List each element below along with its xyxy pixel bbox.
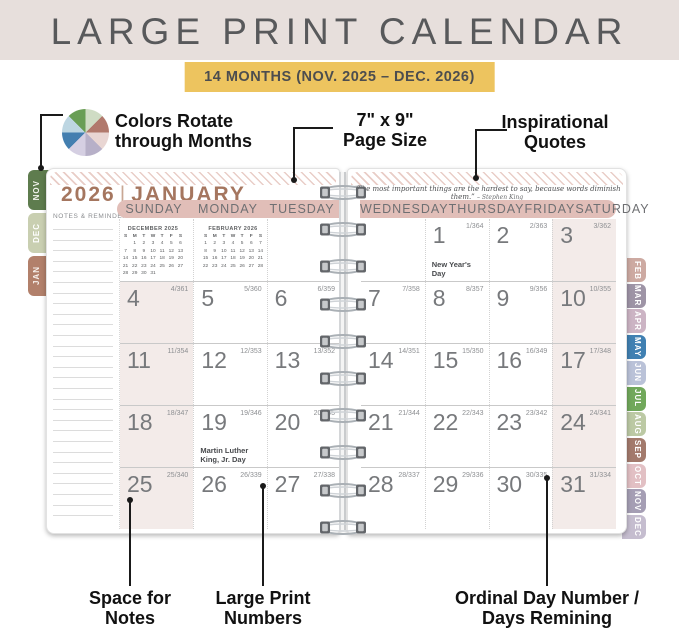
day-number: 25 [127,471,153,498]
day-number: 12 [201,347,227,374]
ordinal-day-number: 9/356 [530,286,548,293]
ordinal-day-number: 23/342 [526,410,547,417]
spiral-ring [318,221,368,238]
notes-line [53,303,113,304]
tab-label: APR [633,311,642,331]
day-number: 9 [497,285,510,312]
day-number: 3 [560,222,573,249]
mini-calendar-december: DECEMBER 2025SMTWTFS12345678910111213141… [121,226,185,278]
notes-line [53,261,113,262]
day-cell-21: 2121/344 [361,405,425,467]
day-number: 28 [368,471,394,498]
spiral-ring [318,444,368,461]
day-cell-16: 1616/349 [489,343,553,405]
notes-line [53,367,113,368]
callout-largeprint-line2: Numbers [200,608,326,628]
day-header-saturday: SATURDAY [575,202,649,216]
mini-calendar-title: FEBRUARY 2026 [201,226,265,232]
ordinal-day-number: 15/350 [462,348,483,355]
day-cell-30: 3030/335 [489,467,553,529]
day-number: 20 [275,409,301,436]
mini-calendar-week-row: 891011121314 [201,248,265,255]
notes-line [53,515,113,516]
day-cell-7: 77/358 [361,281,425,343]
notes-line [53,324,113,325]
ordinal-day-number: 21/344 [398,410,419,417]
tab-label: MAR [633,285,642,306]
day-cell-24: 2424/341 [552,405,616,467]
day-header-thursday: THURSDAY [449,202,525,216]
callout-connector-largeprint [262,487,264,586]
day-number: 15 [433,347,459,374]
ordinal-day-number: 16/349 [526,348,547,355]
header-strip: LARGE PRINT CALENDAR [0,0,679,60]
callout-dot-ordinal [544,475,550,481]
ordinal-day-number: 4/361 [171,286,189,293]
day-cell-10: 1010/355 [552,281,616,343]
year-label: 2026 [61,183,116,206]
callout-page-size: 7" x 9" Page Size [325,110,445,150]
notes-line [53,293,113,294]
callout-connector-colors-h [40,114,63,116]
day-number: 21 [368,409,394,436]
day-header-band-left: SUNDAYMONDAYTUESDAY [117,200,339,218]
day-number: 4 [127,285,140,312]
day-number: 13 [275,347,301,374]
day-header-friday: FRIDAY [524,202,575,216]
ordinal-day-number: 10/355 [590,286,611,293]
notes-line [53,240,113,241]
tab-label: FEB [633,261,642,280]
notes-line [53,346,113,347]
day-number: 27 [275,471,301,498]
day-number: 10 [560,285,586,312]
ordinal-day-number: 7/358 [402,286,420,293]
tab-label: DEC [32,223,41,243]
notes-ruled-lines [53,229,113,527]
spiral-ring [318,519,368,536]
day-number: 17 [560,347,586,374]
mini-calendar-week-row: 15161718192021 [201,255,265,262]
day-number: 5 [201,285,214,312]
day-number: 2 [497,222,510,249]
tab-label: OCT [633,466,642,486]
calendar-left-page: 2026|JANUARY NOTES & REMINDERS SUNDAYMON… [46,168,340,534]
decor-hatch-strip [351,172,623,185]
ordinal-day-number: 11/354 [167,348,188,355]
notes-line [53,473,113,474]
callout-dot-notes [127,497,133,503]
tab-label: SEP [633,440,642,459]
callout-pagesize-line1: 7" x 9" [325,110,445,130]
mini-calendar-week-row: 22232425262728 [201,263,265,270]
day-cell-5: 55/360 [193,281,266,343]
mini-calendar-week-row: 1234567 [201,240,265,247]
ordinal-day-number: 24/341 [590,410,611,417]
notes-line [53,335,113,336]
day-cell-18: 1818/347 [120,405,193,467]
callout-dot-quotes [473,175,479,181]
ordinal-day-number: 2/363 [530,223,548,230]
tab-label: JUN [633,363,642,382]
day-number: 7 [368,285,381,312]
notes-line [53,505,113,506]
day-cell-17: 1717/348 [552,343,616,405]
tab-label: JAN [32,266,41,285]
ordinal-day-number: 25/340 [167,472,188,479]
spiral-ring [318,333,368,350]
ordinal-day-number: 28/337 [398,472,419,479]
day-header-monday: MONDAY [191,202,265,216]
callout-colors-rotate: Colors Rotate through Months [115,111,252,151]
notes-line [53,356,113,357]
tab-label: NOV [633,491,642,511]
callout-colors-line2: through Months [115,131,252,151]
day-number: 6 [275,285,288,312]
callout-quotes-line2: Quotes [495,132,615,152]
day-cell-empty [361,219,425,281]
page-title: LARGE PRINT CALENDAR [0,0,679,60]
notes-line [53,420,113,421]
notes-line [53,399,113,400]
day-number: 23 [497,409,523,436]
ordinal-day-number: 19/346 [240,410,261,417]
day-number: 1 [433,222,446,249]
mini-calendar-week-row: 78910111213 [121,248,185,255]
spiral-ring [318,296,368,313]
mini-calendar-week-row: 28293031 [121,270,185,277]
day-cell-14: 1414/351 [361,343,425,405]
day-cell-28: 2828/337 [361,467,425,529]
day-cell-31: 3131/334 [552,467,616,529]
ordinal-day-number: 14/351 [398,348,419,355]
day-number: 22 [433,409,459,436]
product-graphic: LARGE PRINT CALENDAR 14 MONTHS (NOV. 202… [0,0,679,632]
ordinal-day-number: 22/343 [462,410,483,417]
notes-line [53,483,113,484]
ordinal-day-number: 3/362 [593,223,611,230]
day-header-wednesday: WEDNESDAY [360,202,449,216]
callout-connector-quotes-v [475,129,477,177]
day-cell-11: 1111/354 [120,343,193,405]
calendar-right-page: “The most important things are the harde… [347,168,627,534]
spiral-ring [318,370,368,387]
day-cell-1: 11/364New Year's Day [425,219,489,281]
mini-calendar-february: FEBRUARY 2026SMTWTFS12345678910111213141… [201,226,265,270]
day-number: 31 [560,471,586,498]
callout-connector-colors-v [40,114,42,167]
notes-line [53,250,113,251]
callout-largeprint-line1: Large Print [200,588,326,608]
color-wheel-icon [62,109,109,156]
day-cell-15: 1515/350 [425,343,489,405]
callout-quotes: Inspirational Quotes [495,112,615,152]
tab-label: AUG [633,414,642,435]
day-number: 26 [201,471,227,498]
notes-line [53,430,113,431]
ordinal-day-number: 8/357 [466,286,484,293]
notes-line [53,271,113,272]
mini-calendar-week-row: 14151617181920 [121,255,185,262]
notes-line [53,441,113,442]
day-number: 11 [127,347,151,374]
ordinal-day-number: 17/348 [590,348,611,355]
mini-calendar-title: DECEMBER 2025 [121,226,185,232]
ordinal-day-number: 31/334 [590,472,611,479]
ordinal-day-number: 12/353 [240,348,261,355]
day-header-band-right: WEDNESDAYTHURSDAYFRIDAYSATURDAY [360,200,616,218]
day-number: 8 [433,285,446,312]
tab-label: JUL [633,389,642,407]
callout-large-print: Large Print Numbers [200,588,326,628]
callout-connector-ordinal [546,479,548,586]
tab-label: DEC [633,517,642,537]
callout-space-for-notes: Space for Notes [70,588,190,628]
day-number: 14 [368,347,394,374]
spiral-ring [318,184,368,201]
notes-line [53,452,113,453]
day-number: 24 [560,409,586,436]
ordinal-day-number: 29/336 [462,472,483,479]
notes-line [53,462,113,463]
notes-line [53,494,113,495]
holiday-note: New Year's Day [432,260,485,278]
day-number: 19 [201,409,227,436]
day-number: 16 [497,347,523,374]
callout-dot-colors [38,165,44,171]
notes-line [53,314,113,315]
callout-ordinal-line2: Days Remining [427,608,667,628]
day-cell-9: 99/356 [489,281,553,343]
callout-connector-pagesize-v [293,127,295,179]
ordinal-day-number: 6/359 [317,286,335,293]
day-cell-12: 1212/353 [193,343,266,405]
callout-ordinal-line1: Ordinal Day Number / [427,588,667,608]
mini-calendar-week-row: 21222324252627 [121,263,185,270]
callout-notes-line1: Space for [70,588,190,608]
spiral-ring [318,258,368,275]
ordinal-day-number: 5/360 [244,286,262,293]
callout-connector-notes [129,500,131,586]
day-header-sunday: SUNDAY [117,202,191,216]
spiral-ring [318,482,368,499]
mini-calendar-week-row: 123456 [121,240,185,247]
callout-dot-largeprint [260,483,266,489]
ordinal-day-number: 26/339 [240,472,261,479]
day-cell-26: 2626/339 [193,467,266,529]
months-range-banner: 14 MONTHS (NOV. 2025 – DEC. 2026) [184,62,495,92]
notes-line [53,229,113,230]
day-cell-4: 44/361 [120,281,193,343]
ordinal-day-number: 27/338 [314,472,335,479]
tab-label: MAY [633,337,642,357]
day-cell-8: 88/357 [425,281,489,343]
calendar-grid-right: 11/364New Year's Day22/36333/36277/35888… [361,219,616,529]
notes-line [53,388,113,389]
callout-quotes-line1: Inspirational [495,112,615,132]
holiday-note: Martin Luther King, Jr. Day [200,446,261,464]
day-header-tuesday: TUESDAY [265,202,339,216]
day-number: 18 [127,409,153,436]
day-number: 29 [433,471,459,498]
mini-calendar-dow-row: SMTWTFS [201,233,265,240]
mini-calendar-dow-row: SMTWTFS [121,233,185,240]
notes-line [53,377,113,378]
inspirational-quote: “The most important things are the harde… [348,185,626,201]
notes-line [53,282,113,283]
day-number: 30 [497,471,523,498]
callout-colors-line1: Colors Rotate [115,111,252,131]
callout-dot-pagesize [291,177,297,183]
day-cell-2: 22/363 [489,219,553,281]
callout-pagesize-line2: Page Size [325,130,445,150]
callout-ordinal: Ordinal Day Number / Days Remining [427,588,667,628]
callout-notes-line2: Notes [70,608,190,628]
day-cell-22: 2222/343 [425,405,489,467]
ordinal-day-number: 1/364 [466,223,484,230]
day-cell-29: 2929/336 [425,467,489,529]
notes-line [53,409,113,410]
ordinal-day-number: 18/347 [167,410,188,417]
day-cell-23: 2323/342 [489,405,553,467]
spiral-ring [318,407,368,424]
tab-label: NOV [32,180,41,200]
day-cell-19: 1919/346Martin Luther King, Jr. Day [193,405,266,467]
day-cell-3: 33/362 [552,219,616,281]
